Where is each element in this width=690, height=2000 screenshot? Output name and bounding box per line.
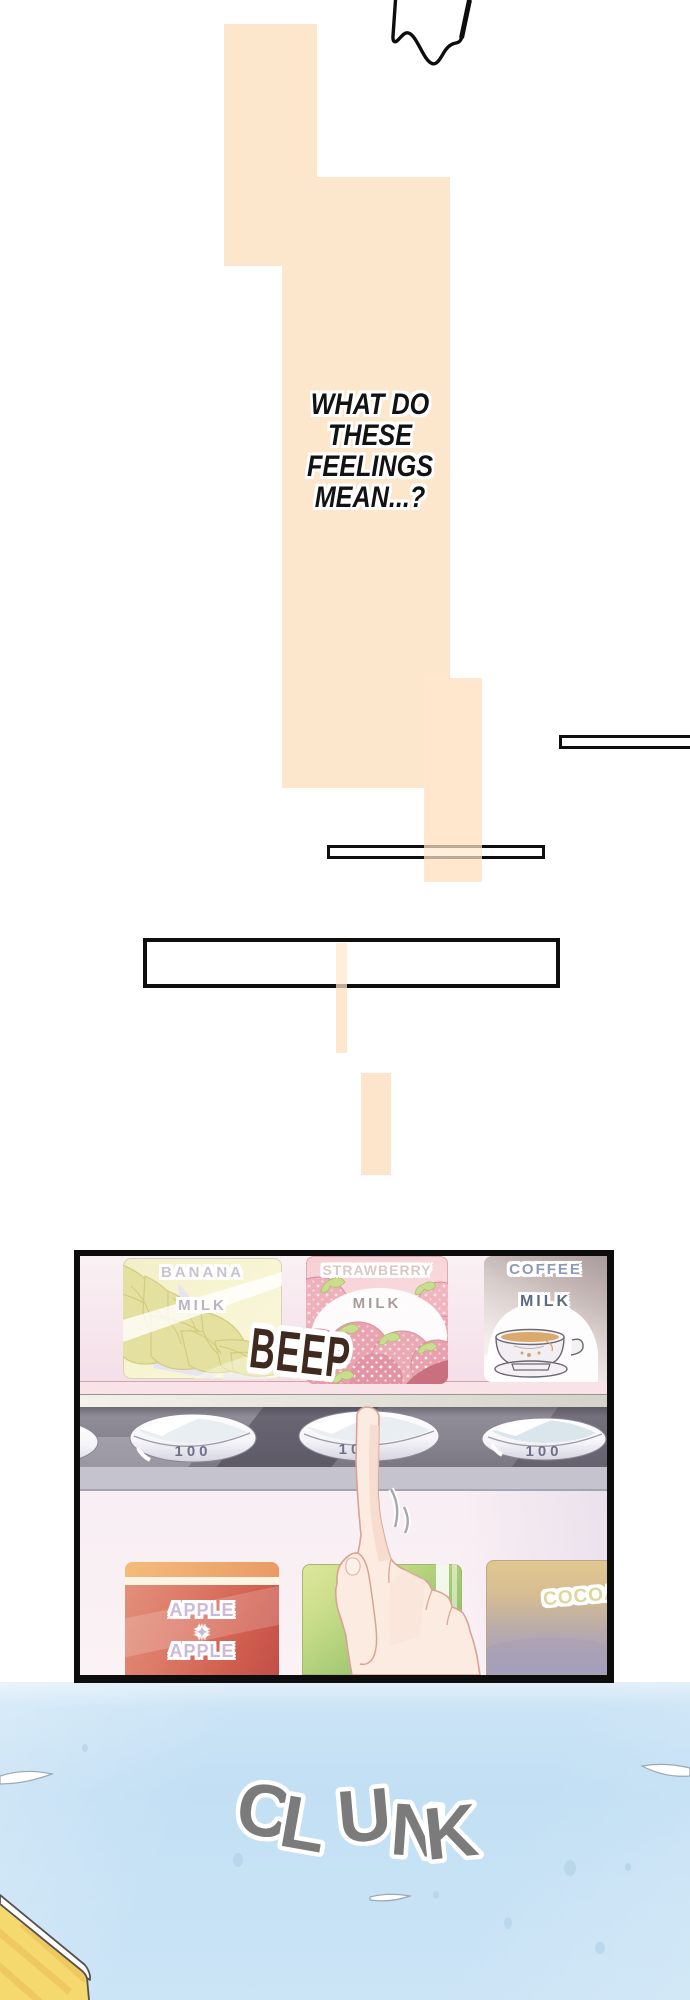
svg-text:100: 100 [174, 1443, 211, 1460]
svg-text:K: K [420, 1788, 482, 1876]
svg-text:BEEP: BEEP [246, 1317, 354, 1391]
svg-text:U: U [334, 1772, 394, 1859]
